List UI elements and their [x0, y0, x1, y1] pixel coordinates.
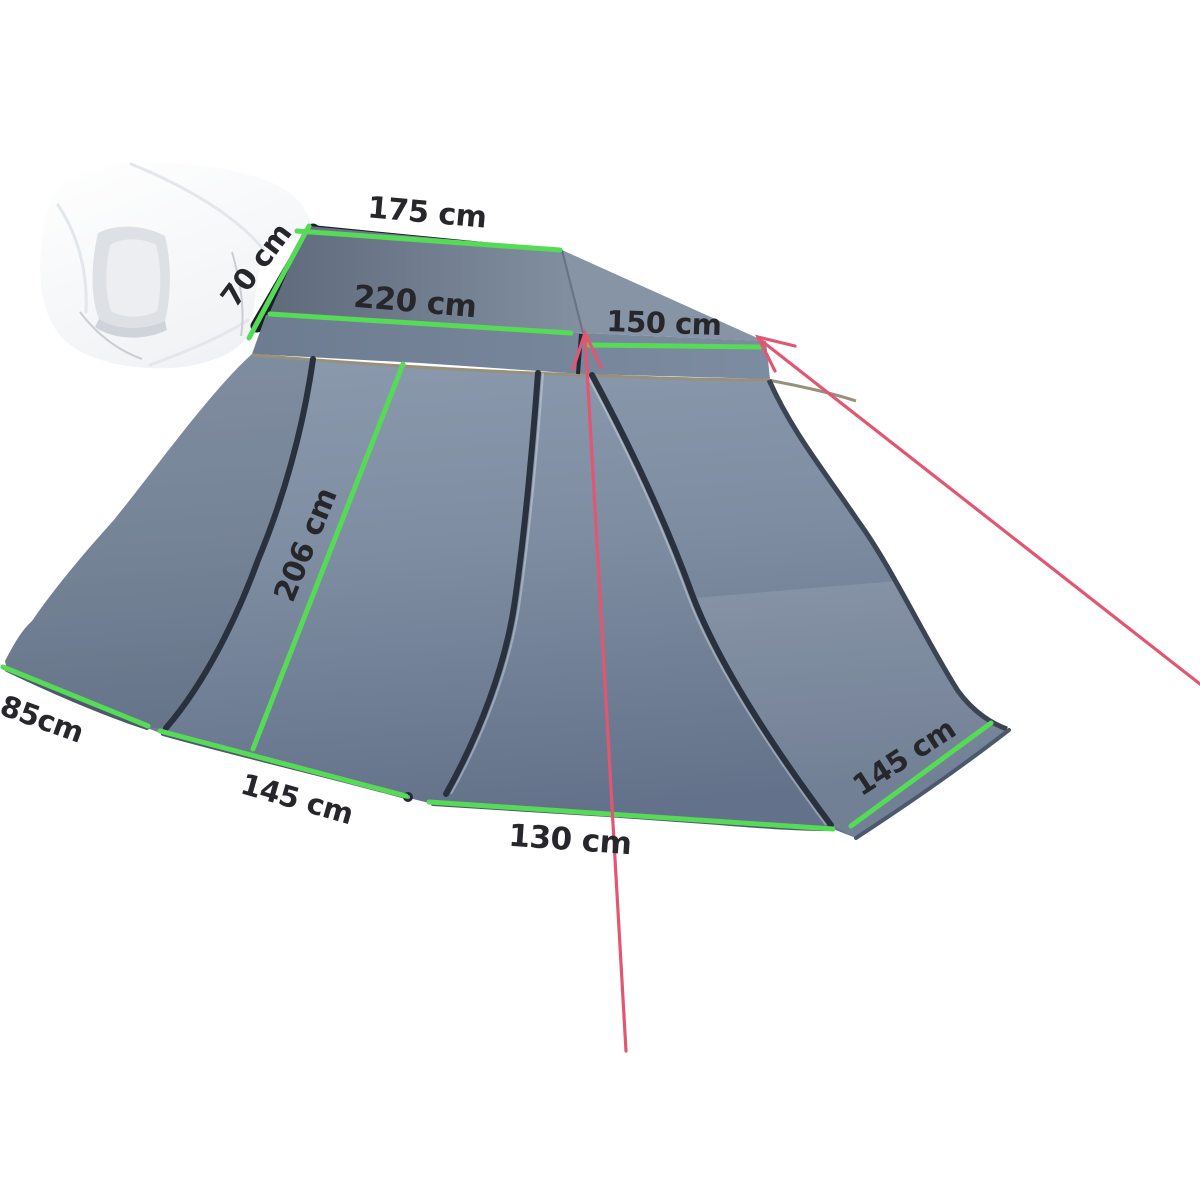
dimension-label-upper-side-width: 150 cm [606, 304, 722, 342]
product-dimension-diagram: 175 cm 70 cm 220 cm 150 cm 206 cm 85cm 1… [0, 0, 1200, 1200]
dimension-line-150 [587, 345, 760, 347]
tent-illustration [0, 0, 1200, 1200]
